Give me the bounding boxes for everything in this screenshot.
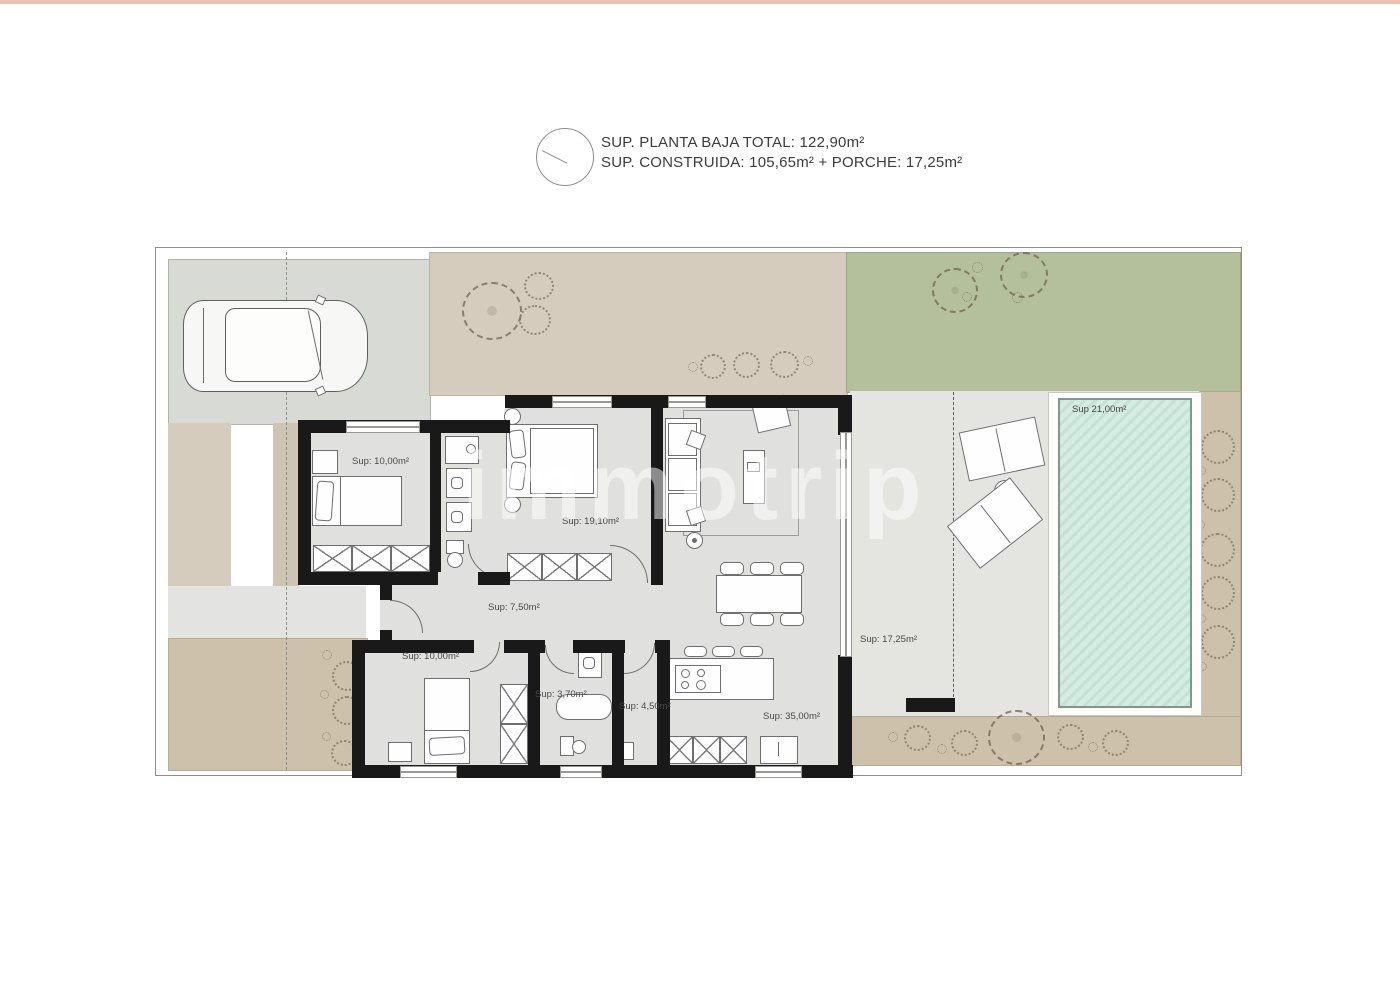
- wardrobe-cell: [313, 545, 352, 572]
- bed-line: [425, 730, 469, 731]
- shrub-icon: [904, 725, 931, 751]
- plant-sprig-icon: [688, 362, 698, 372]
- kitchen-cabinet-cell: [666, 736, 693, 764]
- shrub-icon: [733, 352, 760, 378]
- kitchen-faucet: [778, 742, 779, 756]
- room-label-pool: Sup 21,00m²: [1072, 404, 1126, 415]
- room-label-bedroom-1: Sup: 10,00m²: [352, 456, 409, 467]
- floor-lamp-dot: [692, 538, 697, 543]
- dining-chair: [750, 562, 774, 575]
- window: [560, 766, 602, 778]
- wardrobe-cell: [500, 684, 528, 724]
- window: [668, 396, 706, 408]
- pool: [1058, 398, 1192, 708]
- plan-title-line2: SUP. CONSTRUIDA: 105,65m² + PORCHE: 17,2…: [601, 154, 962, 171]
- tree-icon: [988, 710, 1045, 765]
- north-arrow-icon: [536, 128, 594, 186]
- shrub-icon: [770, 351, 799, 378]
- wall: [573, 640, 625, 653]
- window: [755, 766, 802, 778]
- porch-overhang-dashed-line: [953, 392, 954, 712]
- porch-step: [906, 698, 955, 712]
- sink-basin: [451, 511, 463, 523]
- shrub-icon: [1057, 724, 1084, 750]
- window: [552, 396, 612, 408]
- plant-sprig-icon: [1088, 742, 1098, 752]
- room-label-hallway: Sup: 7,50m²: [488, 602, 540, 613]
- car-cabin: [225, 308, 321, 382]
- shrub-icon: [951, 730, 978, 756]
- plant-sprig-icon: [937, 744, 947, 754]
- plan-title-line1: SUP. PLANTA BAJA TOTAL: 122,90m²: [601, 134, 864, 151]
- bed-pillow: [508, 429, 526, 459]
- room-label-bedroom-2: Sup: 10,00m²: [402, 651, 459, 662]
- burner: [697, 669, 705, 677]
- plant-sprig-icon: [320, 690, 329, 699]
- room-label-utility: Sup: 4,50m²: [619, 701, 671, 712]
- sofa-cushion: [668, 458, 697, 491]
- toilet-bowl: [572, 740, 586, 754]
- shrub-icon: [524, 272, 554, 300]
- sink-basin: [451, 477, 463, 489]
- burner: [681, 669, 690, 678]
- wardrobe-cell: [577, 553, 612, 581]
- sand-strip-left: [168, 423, 231, 586]
- sink-basin: [583, 657, 595, 669]
- plant-sprig-icon: [803, 356, 813, 366]
- wall: [298, 420, 311, 585]
- wall: [528, 653, 540, 765]
- room-label-kitchen-living: Sup: 35,00m²: [763, 711, 820, 722]
- entrance-path: [168, 586, 366, 638]
- sliding-glass-door: [840, 432, 852, 657]
- nightstand: [388, 742, 412, 762]
- nightstand: [312, 450, 338, 474]
- wardrobe-cell: [500, 724, 528, 764]
- dining-chair: [750, 613, 774, 626]
- floor-plan-page: SUP. PLANTA BAJA TOTAL: 122,90m² SUP. CO…: [0, 0, 1400, 990]
- wall: [838, 655, 852, 778]
- plant-sprig-icon: [322, 732, 331, 741]
- wall: [504, 640, 545, 653]
- dining-chair: [780, 562, 804, 575]
- shrub-icon: [1200, 533, 1235, 567]
- dining-chair: [720, 613, 744, 626]
- shrub-icon: [1201, 576, 1235, 610]
- burner: [696, 680, 706, 690]
- shower-drain: [466, 444, 476, 454]
- bar-stool: [684, 646, 707, 657]
- room-hallway: [380, 585, 663, 648]
- tree-icon: [1000, 252, 1048, 298]
- plant-sprig-icon: [322, 650, 332, 660]
- tree-icon: [462, 282, 522, 340]
- plant-sprig-icon: [972, 262, 983, 273]
- plant-sprig-icon: [1012, 292, 1023, 303]
- shrub-icon: [1102, 730, 1129, 756]
- toilet-bowl: [447, 552, 463, 568]
- shrub-icon: [700, 354, 726, 379]
- room-label-master-bedroom: Sup: 19,10m²: [562, 516, 619, 527]
- bar-stool: [712, 646, 735, 657]
- page-top-border: [0, 0, 1400, 4]
- nightstand-round: [504, 496, 521, 513]
- car-rear-line: [203, 308, 204, 383]
- dining-table: [716, 575, 802, 613]
- kitchen-cabinet-cell: [720, 736, 747, 764]
- car-top-view: [183, 300, 368, 392]
- burner: [681, 681, 689, 689]
- shrub-icon: [519, 305, 551, 335]
- window: [400, 766, 457, 778]
- wall: [478, 572, 510, 585]
- room-label-porch: Sup: 17,25m²: [860, 634, 917, 645]
- bed-pillow: [429, 736, 466, 756]
- dining-chair: [720, 562, 744, 575]
- plant-sprig-icon: [962, 292, 972, 302]
- shrub-icon: [1201, 625, 1235, 659]
- kitchen-cabinet-cell: [693, 736, 720, 764]
- window: [346, 421, 420, 433]
- wall: [380, 585, 392, 600]
- tree-icon: [932, 268, 978, 313]
- dining-chair: [780, 613, 804, 626]
- shrub-icon: [1201, 478, 1235, 512]
- wall: [430, 433, 441, 572]
- wardrobe-cell: [507, 553, 542, 581]
- bed-line: [340, 477, 341, 525]
- tv-screen: [747, 462, 760, 472]
- wall: [352, 640, 365, 778]
- shrub-icon: [1201, 430, 1235, 464]
- wall: [838, 395, 852, 435]
- bed-blanket: [530, 428, 594, 494]
- wardrobe-cell: [542, 553, 577, 581]
- tv-unit: [743, 450, 765, 504]
- wardrobe-cell: [391, 545, 430, 572]
- bar-stool: [740, 646, 763, 657]
- wardrobe-cell: [352, 545, 391, 572]
- room-label-bathroom-2: Sup: 3,70m²: [535, 689, 587, 700]
- wall: [651, 408, 663, 585]
- plant-sprig-icon: [888, 732, 898, 742]
- wall: [298, 572, 438, 585]
- bed-pillow: [315, 480, 335, 521]
